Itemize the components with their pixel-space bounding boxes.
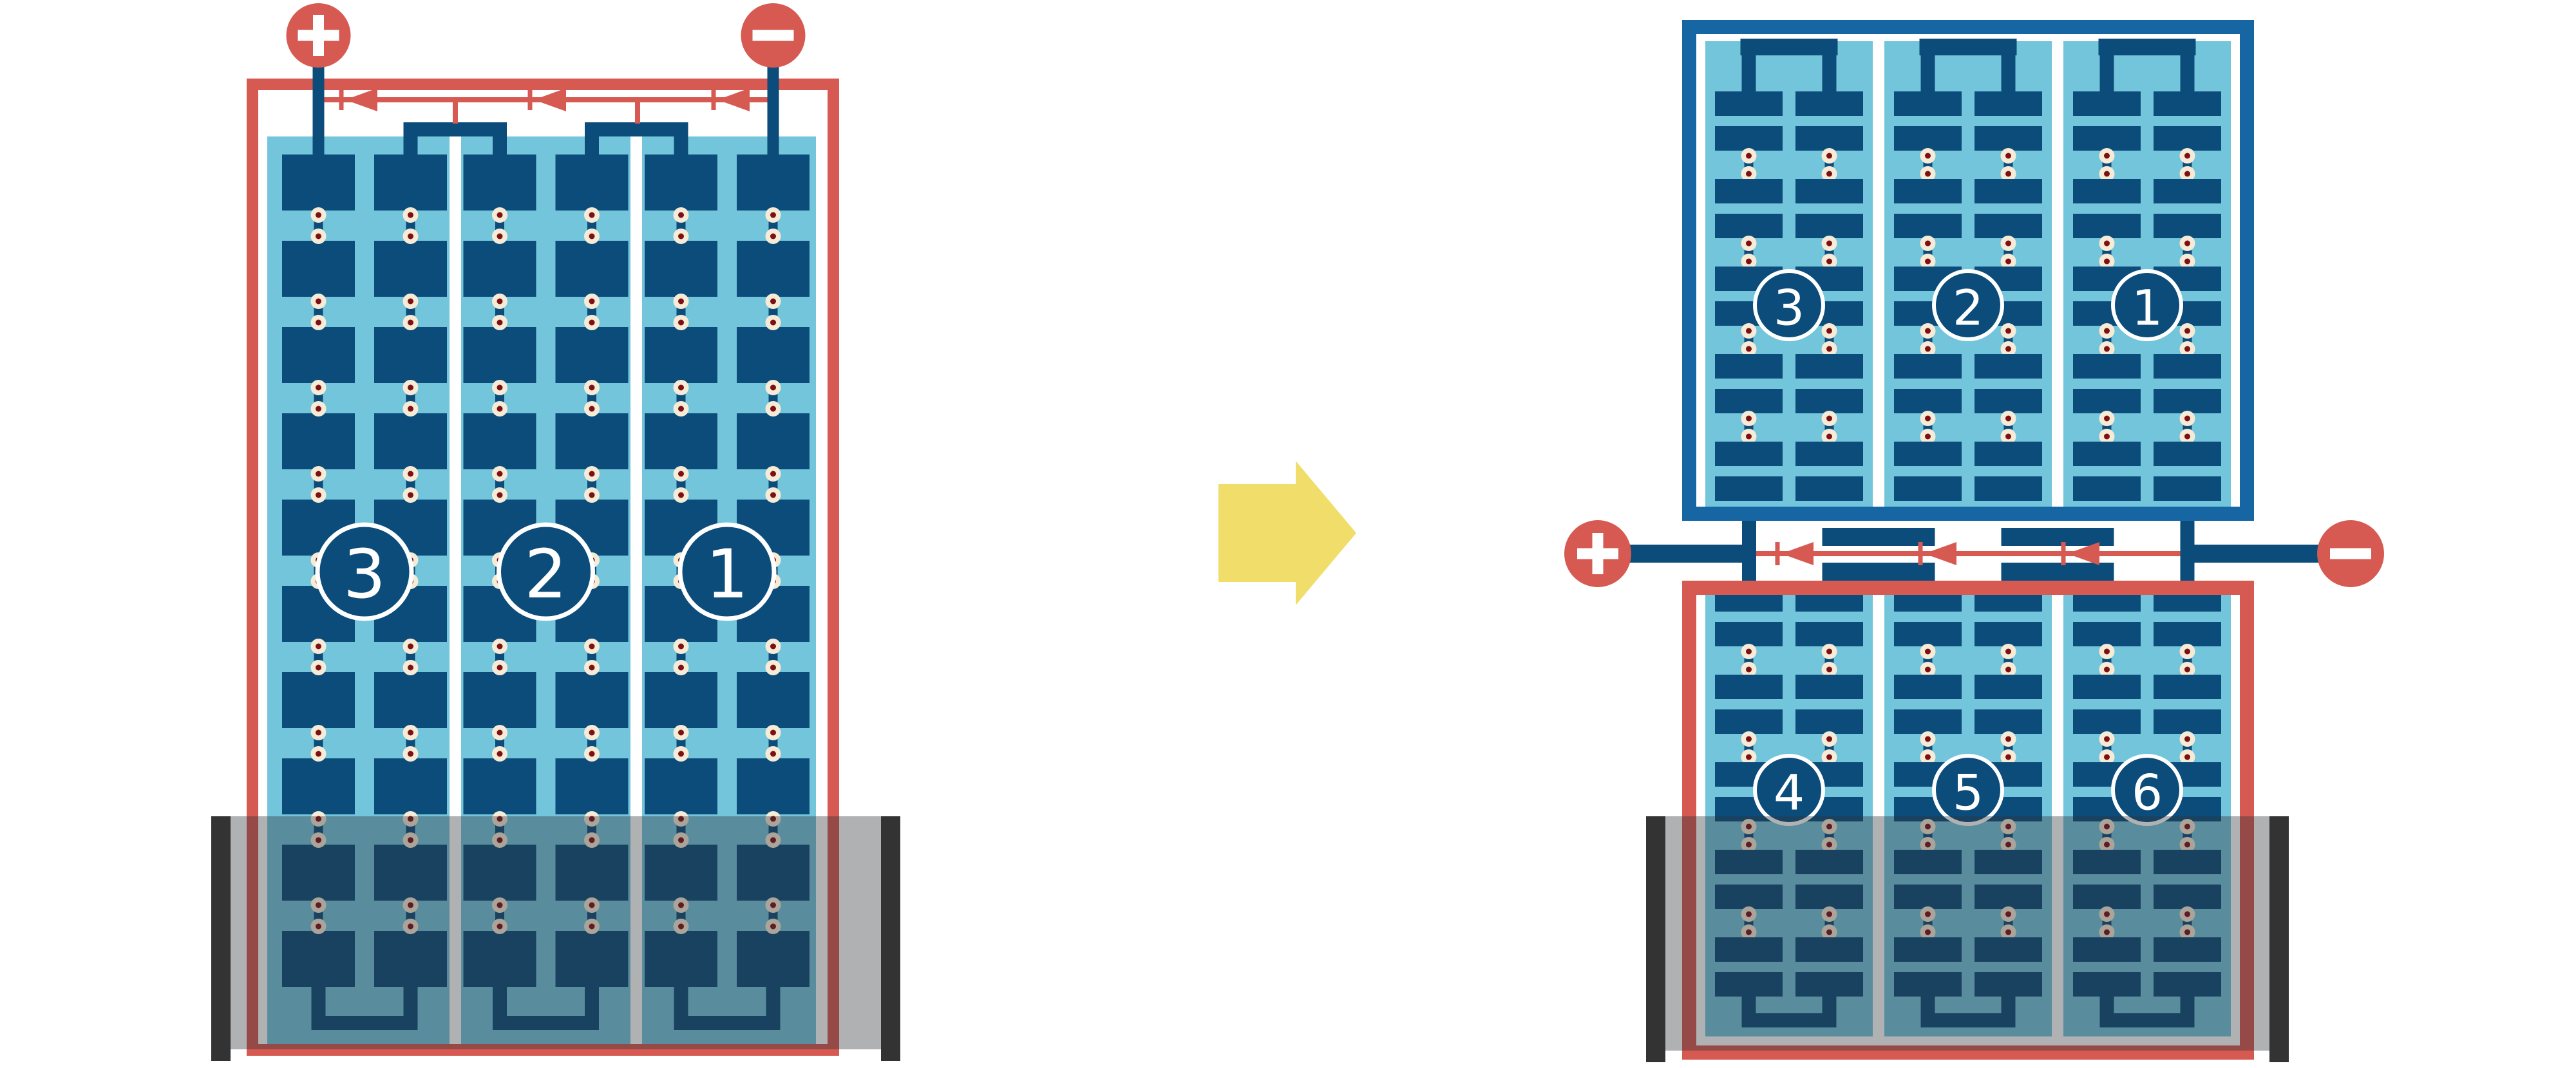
rivet-dot-core xyxy=(1925,346,1931,352)
cell-number: 3 xyxy=(343,535,386,614)
plate xyxy=(2154,675,2221,699)
rivet-dot-core xyxy=(2184,241,2190,247)
rivet-dot-core xyxy=(678,751,684,757)
rivet-dot-core xyxy=(2104,346,2110,352)
rivet-dot-core xyxy=(2005,346,2011,352)
case-side-bar xyxy=(1646,816,1665,1062)
cell-badge: 2 xyxy=(499,525,593,619)
plate xyxy=(1715,675,1783,699)
rivet-dot-core xyxy=(2104,416,2110,422)
plate xyxy=(645,413,717,469)
rivet-dot-core xyxy=(408,320,413,326)
rivet-dot-core xyxy=(2184,153,2190,159)
cell-number: 6 xyxy=(2132,764,2163,821)
rivet-dot-core xyxy=(770,730,776,736)
rivet-dot-core xyxy=(408,730,413,736)
flow-stub xyxy=(635,102,640,124)
cell-u-strap-post xyxy=(2002,55,2016,91)
rivet-dot-core xyxy=(678,665,684,671)
rivet-dot-core xyxy=(2104,241,2110,247)
cell-u-strap-post xyxy=(1742,55,1756,91)
plate xyxy=(2073,476,2141,501)
rivet-dot-core xyxy=(1925,736,1931,742)
plate xyxy=(2154,214,2221,238)
plate xyxy=(1795,179,1863,203)
rivet-dot-core xyxy=(2005,754,2011,760)
rivet-dot-core xyxy=(316,299,321,304)
inter-unit-strap xyxy=(1823,528,1935,546)
plate xyxy=(737,241,810,297)
rivet-dot-core xyxy=(1746,667,1752,673)
plate xyxy=(2154,442,2221,466)
cell-number: 3 xyxy=(1774,279,1804,337)
rivet-dot-core xyxy=(2184,754,2190,760)
rivet-dot-core xyxy=(316,406,321,412)
rivet-dot-core xyxy=(770,299,776,304)
rivet-dot-core xyxy=(1826,649,1832,655)
rivet-dot-core xyxy=(408,212,413,218)
plate xyxy=(1894,389,1962,413)
plate xyxy=(1795,675,1863,699)
cell-u-strap-post xyxy=(1823,55,1837,91)
flow-line xyxy=(1756,551,2181,556)
rivet-dot-core xyxy=(316,471,321,477)
rivet-dot-core xyxy=(1826,153,1832,159)
rivet-dot-core xyxy=(589,751,595,757)
plate xyxy=(1975,91,2042,116)
plate xyxy=(556,758,629,814)
rivet-dot-core xyxy=(2104,153,2110,159)
rivet-dot-core xyxy=(2005,667,2011,673)
rivet-dot-core xyxy=(1826,346,1832,352)
plate xyxy=(645,672,717,728)
plate xyxy=(2154,179,2221,203)
rivet-dot-core xyxy=(678,385,684,391)
plate xyxy=(1795,389,1863,413)
plate xyxy=(1795,476,1863,501)
rivet-dot-core xyxy=(770,234,776,239)
rivet-dot-core xyxy=(497,751,503,757)
rivet-dot-core xyxy=(1826,259,1832,265)
rivet-dot-core xyxy=(1925,754,1931,760)
rivet-dot-core xyxy=(2005,434,2011,440)
rivet-dot-core xyxy=(1925,241,1931,247)
cell-badge: 1 xyxy=(2113,271,2181,339)
plate xyxy=(2073,126,2141,151)
rivet-dot-core xyxy=(1746,416,1752,422)
rivet-dot-core xyxy=(408,665,413,671)
rivet-dot-core xyxy=(2005,241,2011,247)
rivet-dot-core xyxy=(316,385,321,391)
flow-tick xyxy=(1918,542,1923,565)
plate xyxy=(2073,675,2141,699)
plate xyxy=(1894,622,1962,646)
rivet-dot-core xyxy=(2184,649,2190,655)
plate xyxy=(1894,91,1962,116)
rivet-dot-core xyxy=(589,406,595,412)
plate xyxy=(2073,442,2141,466)
rivet-dot-core xyxy=(1826,434,1832,440)
plate xyxy=(282,413,355,469)
rivet-dot-core xyxy=(770,492,776,498)
rivet-dot-core xyxy=(497,234,503,239)
cell-badge: 4 xyxy=(1755,756,1823,824)
plate xyxy=(1715,442,1783,466)
battery-before: 3 2 1 xyxy=(211,3,900,1061)
plate xyxy=(1795,709,1863,734)
rivet-dot-core xyxy=(316,212,321,218)
cell-number: 4 xyxy=(1774,764,1804,821)
plate xyxy=(2073,389,2141,413)
plate xyxy=(374,672,447,728)
plate xyxy=(282,241,355,297)
rivet-dot-core xyxy=(678,320,684,326)
rivet-dot-core xyxy=(1746,649,1752,655)
minus-icon xyxy=(753,30,794,41)
cell-u-strap xyxy=(2099,39,2196,55)
plate xyxy=(737,327,810,383)
cell-number: 2 xyxy=(1953,279,1984,337)
rivet-dot-core xyxy=(589,234,595,239)
terminal-post xyxy=(2181,520,2195,581)
plate xyxy=(1795,354,1863,379)
plate xyxy=(2154,709,2221,734)
terminal-bar xyxy=(2195,545,2319,563)
negative-terminal xyxy=(2317,520,2384,587)
rivet-dot-core xyxy=(678,471,684,477)
plate xyxy=(1715,389,1783,413)
plate xyxy=(1715,214,1783,238)
plate xyxy=(1975,126,2042,151)
plate xyxy=(1975,675,2042,699)
rivet-dot-core xyxy=(1826,754,1832,760)
plate xyxy=(1894,476,1962,501)
rivet-dot-core xyxy=(497,492,503,498)
rivet-dot-core xyxy=(678,406,684,412)
cell-bridge-post xyxy=(585,136,599,173)
plate xyxy=(645,327,717,383)
flow-tick xyxy=(1776,542,1780,565)
rivet-dot-core xyxy=(1746,171,1752,177)
flow-tick xyxy=(528,89,533,110)
rivet-dot-core xyxy=(497,406,503,412)
rivet-dot-core xyxy=(408,234,413,239)
plate xyxy=(374,758,447,814)
rivet-dot-core xyxy=(678,212,684,218)
rivet-dot-core xyxy=(2005,649,2011,655)
rivet-dot-core xyxy=(2184,171,2190,177)
plate xyxy=(1795,214,1863,238)
flow-tick xyxy=(339,89,344,110)
rivet-dot-core xyxy=(770,385,776,391)
inter-unit-strap xyxy=(1823,563,1935,581)
rivet-dot-core xyxy=(2005,171,2011,177)
rivet-dot-core xyxy=(1925,153,1931,159)
rivet-dot-core xyxy=(316,320,321,326)
case-side-bar xyxy=(2269,816,2289,1062)
cell-bridge-post xyxy=(493,136,507,173)
plate xyxy=(1975,476,2042,501)
terminal-bar xyxy=(1630,545,1742,563)
plate xyxy=(1894,179,1962,203)
rivet-dot-core xyxy=(316,665,321,671)
plate xyxy=(1975,214,2042,238)
plate xyxy=(1715,91,1783,116)
rivet-dot-core xyxy=(408,644,413,650)
rivet-dot-core xyxy=(1826,241,1832,247)
plate xyxy=(645,241,717,297)
plate xyxy=(464,327,536,383)
plate xyxy=(737,413,810,469)
rivet-dot-core xyxy=(678,730,684,736)
plate xyxy=(282,672,355,728)
flow-tick xyxy=(2061,542,2066,565)
rivet-dot-core xyxy=(589,299,595,304)
plate xyxy=(464,241,536,297)
rivet-dot-core xyxy=(1746,241,1752,247)
plate xyxy=(2154,476,2221,501)
rivet-dot-core xyxy=(589,665,595,671)
plate xyxy=(1715,179,1783,203)
minus-icon xyxy=(2330,548,2371,559)
plate xyxy=(1894,709,1962,734)
rivet-dot-core xyxy=(678,492,684,498)
rivet-dot-core xyxy=(316,644,321,650)
rivet-dot-core xyxy=(770,320,776,326)
inter-unit-strap xyxy=(2002,563,2114,581)
cell-badge: 1 xyxy=(680,525,774,619)
plate xyxy=(1795,442,1863,466)
plate xyxy=(556,672,629,728)
rivet-dot-core xyxy=(770,751,776,757)
rivet-dot-core xyxy=(2104,171,2110,177)
plate xyxy=(2073,709,2141,734)
cell-badge: 6 xyxy=(2113,756,2181,824)
rivet-dot-core xyxy=(2005,736,2011,742)
cell-bridge-post xyxy=(674,136,688,173)
rivet-dot-core xyxy=(1925,416,1931,422)
rivet-dot-core xyxy=(2184,667,2190,673)
cell-bridge-strap xyxy=(585,122,688,136)
rivet-dot-core xyxy=(497,730,503,736)
positive-terminal xyxy=(287,3,351,68)
rivet-dot-core xyxy=(408,385,413,391)
cell-number: 2 xyxy=(524,535,567,614)
plate xyxy=(2154,91,2221,116)
plate xyxy=(1795,91,1863,116)
rivet-dot-core xyxy=(316,730,321,736)
rivet-dot-core xyxy=(589,212,595,218)
rivet-dot-core xyxy=(1925,171,1931,177)
rivet-dot-core xyxy=(1746,736,1752,742)
plate xyxy=(282,758,355,814)
rivet-dot-core xyxy=(589,492,595,498)
plate xyxy=(1975,622,2042,646)
rivet-dot-core xyxy=(589,644,595,650)
plate xyxy=(737,672,810,728)
rivet-dot-core xyxy=(1746,259,1752,265)
case-tray-overlay xyxy=(211,816,900,1049)
plate xyxy=(464,413,536,469)
cell-number: 1 xyxy=(706,535,748,614)
rivet-dot-core xyxy=(2104,754,2110,760)
cell-bridge-strap xyxy=(404,122,507,136)
rivet-dot-core xyxy=(678,299,684,304)
rivet-dot-core xyxy=(2005,328,2011,334)
rivet-dot-core xyxy=(678,234,684,239)
plate xyxy=(737,758,810,814)
plate xyxy=(1795,126,1863,151)
rivet-dot-core xyxy=(2184,259,2190,265)
plate xyxy=(2154,622,2221,646)
rivet-dot-core xyxy=(2184,434,2190,440)
plate xyxy=(1894,675,1962,699)
cell-u-strap xyxy=(1741,39,1838,55)
rivet-dot-core xyxy=(1746,434,1752,440)
rivet-dot-core xyxy=(770,644,776,650)
rivet-dot-core xyxy=(408,406,413,412)
rivet-dot-core xyxy=(497,299,503,304)
plate xyxy=(1715,476,1783,501)
rivet-dot-core xyxy=(1746,346,1752,352)
rivet-dot-core xyxy=(2184,416,2190,422)
rivet-dot-core xyxy=(2184,328,2190,334)
rivet-dot-core xyxy=(589,320,595,326)
rivet-dot-core xyxy=(2005,259,2011,265)
rivet-dot-core xyxy=(408,492,413,498)
rivet-dot-core xyxy=(2104,736,2110,742)
plate xyxy=(464,758,536,814)
rivet-dot-core xyxy=(316,751,321,757)
rivet-dot-core xyxy=(1826,328,1832,334)
case-tray-overlay xyxy=(1646,816,2289,1051)
cell-number: 5 xyxy=(1953,764,1984,821)
rivet-dot-core xyxy=(1925,667,1931,673)
rivet-dot-core xyxy=(2184,736,2190,742)
plate xyxy=(2154,389,2221,413)
rivet-dot-core xyxy=(1826,171,1832,177)
plate xyxy=(2073,622,2141,646)
terminal-post xyxy=(768,64,779,173)
rivet-dot-core xyxy=(316,492,321,498)
plate xyxy=(2073,91,2141,116)
plate xyxy=(1795,622,1863,646)
rivet-dot-core xyxy=(1925,259,1931,265)
cell-badge: 3 xyxy=(1755,271,1823,339)
plate xyxy=(374,327,447,383)
plate xyxy=(2154,354,2221,379)
rivet-dot-core xyxy=(316,234,321,239)
plate xyxy=(1975,179,2042,203)
rivet-dot-core xyxy=(408,299,413,304)
rivet-dot-core xyxy=(2005,153,2011,159)
cell-number: 1 xyxy=(2132,279,2163,337)
diagram-stage: 3 2 1 xyxy=(0,0,2576,1068)
rivet-dot-core xyxy=(2184,346,2190,352)
rivet-dot-core xyxy=(497,385,503,391)
plate xyxy=(645,758,717,814)
rivet-dot-core xyxy=(589,730,595,736)
plate xyxy=(1715,709,1783,734)
flow-stub xyxy=(453,102,458,124)
rivet-dot-core xyxy=(408,751,413,757)
rivet-dot-core xyxy=(497,471,503,477)
cell-u-strap-post xyxy=(2100,55,2114,91)
positive-terminal xyxy=(1564,520,1631,587)
rivet-dot-core xyxy=(2104,259,2110,265)
plate xyxy=(2073,214,2141,238)
plate xyxy=(374,241,447,297)
cell-u-strap xyxy=(1920,39,2017,55)
rivet-dot-core xyxy=(770,406,776,412)
battery-diagram-canvas: 3 2 1 xyxy=(0,0,2576,1068)
rivet-dot-core xyxy=(1925,434,1931,440)
plate xyxy=(1715,126,1783,151)
plate xyxy=(1975,709,2042,734)
rivet-dot-core xyxy=(2104,649,2110,655)
rivet-dot-core xyxy=(1746,153,1752,159)
flow-tick xyxy=(712,89,716,110)
rivet-dot-core xyxy=(408,471,413,477)
plate xyxy=(556,413,629,469)
plate xyxy=(2154,126,2221,151)
negative-terminal xyxy=(741,3,806,68)
rivet-dot-core xyxy=(770,471,776,477)
rivet-dot-core xyxy=(1826,667,1832,673)
rivet-dot-core xyxy=(1925,649,1931,655)
rivet-dot-core xyxy=(589,471,595,477)
rivet-dot-core xyxy=(497,665,503,671)
terminal-post xyxy=(1742,520,1756,581)
cell-bridge-post xyxy=(404,136,418,173)
plate xyxy=(556,241,629,297)
cell-divider xyxy=(1873,41,1884,514)
rivet-dot-core xyxy=(497,644,503,650)
rivet-dot-core xyxy=(2005,416,2011,422)
rivet-dot-core xyxy=(678,644,684,650)
rivet-dot-core xyxy=(1826,736,1832,742)
plate xyxy=(1894,214,1962,238)
rivet-dot-core xyxy=(1746,328,1752,334)
rivet-dot-core xyxy=(1925,328,1931,334)
rivet-dot-core xyxy=(497,320,503,326)
terminal-post xyxy=(313,64,325,173)
cell-badge: 2 xyxy=(1934,271,2002,339)
plate xyxy=(2073,354,2141,379)
plate xyxy=(1975,442,2042,466)
cell-badge: 3 xyxy=(317,525,412,619)
plate xyxy=(1894,354,1962,379)
rivet-dot-core xyxy=(1746,754,1752,760)
rivet-dot-core xyxy=(770,212,776,218)
plate xyxy=(282,327,355,383)
plate xyxy=(1715,354,1783,379)
plate xyxy=(1894,442,1962,466)
plate xyxy=(2073,179,2141,203)
plate xyxy=(556,327,629,383)
plate xyxy=(464,672,536,728)
plate xyxy=(1975,354,2042,379)
cell-divider xyxy=(2052,41,2063,514)
case-side-bar xyxy=(881,816,900,1061)
plate xyxy=(1975,389,2042,413)
cell-u-strap-post xyxy=(2181,55,2195,91)
case-side-bar xyxy=(211,816,231,1061)
rivet-dot-core xyxy=(2104,667,2110,673)
rivet-dot-core xyxy=(2104,434,2110,440)
plate xyxy=(1715,622,1783,646)
cell-badge: 5 xyxy=(1934,756,2002,824)
